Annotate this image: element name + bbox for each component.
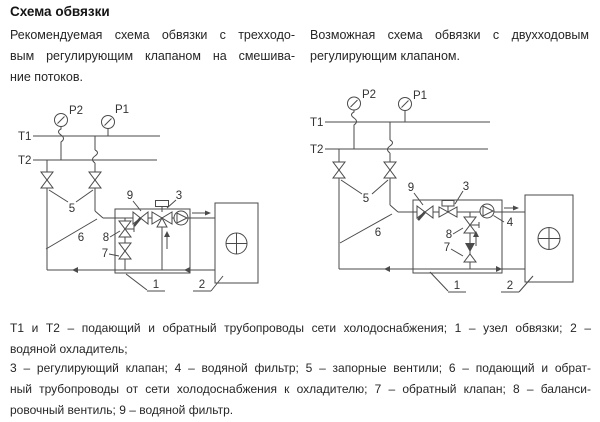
- leader-line: [455, 191, 463, 204]
- pipe-label-t1: Т1: [18, 131, 31, 143]
- callout-6: 6: [375, 227, 381, 239]
- filter-triangle: [141, 212, 149, 224]
- water-cooler: [215, 203, 258, 283]
- pipe-label-t2: Т2: [310, 144, 323, 156]
- pump-icon: [174, 211, 188, 225]
- arrow-head: [164, 231, 170, 237]
- document-page: Схема обвязки Рекомендуемая схема обвязк…: [0, 0, 600, 422]
- valve-triangle: [384, 162, 396, 170]
- pressure-gauge-p2: P2: [55, 105, 84, 160]
- valve-triangle: [89, 172, 101, 180]
- valve-triangle: [333, 162, 345, 170]
- callout-5: 5: [363, 193, 369, 205]
- callout-7: 7: [102, 248, 108, 260]
- balancing-valve-icon: [119, 221, 134, 237]
- flow-arrow-left-icon: [184, 267, 201, 273]
- pipe-bend: [390, 205, 398, 212]
- gauge-label-p1: P1: [413, 90, 427, 102]
- arrow-head: [184, 267, 190, 273]
- callout-3: 3: [176, 190, 182, 202]
- leader-line: [372, 180, 388, 194]
- callout-5: 5: [69, 203, 75, 215]
- valve-triangle: [464, 217, 476, 225]
- water-filter-icon: [133, 212, 148, 226]
- legend-paragraph-1: Т1 и Т2 – подающий и обратный трубопрово…: [10, 318, 591, 360]
- legend-line: 3 – регулирующий клапан; 4 – водяной фил…: [10, 358, 591, 379]
- valve-triangle: [384, 170, 396, 178]
- callout-9: 9: [408, 182, 414, 194]
- callout-3: 3: [463, 181, 469, 193]
- valve-triangle: [464, 254, 476, 262]
- flow-arrow-right-icon: [504, 206, 519, 211]
- leader-line: [453, 228, 463, 234]
- leader-line: [341, 180, 362, 194]
- leader-line: [430, 272, 448, 291]
- leader-line: [451, 249, 463, 256]
- shutoff-valve-icon: [333, 162, 345, 178]
- balancing-valve-icon: [464, 217, 479, 233]
- legend-paragraph-2: 3 – регулирующий клапан; 4 – водяной фил…: [10, 358, 591, 421]
- shutoff-valve-icon: [89, 172, 101, 188]
- gauge-stem: [352, 110, 357, 149]
- valve-triangle-filled: [465, 243, 475, 252]
- valve-triangle: [119, 243, 131, 251]
- callout-2: 2: [507, 280, 513, 292]
- flow-arrow-right-icon: [486, 266, 502, 272]
- arrow-head: [513, 206, 519, 211]
- arrow-head: [205, 211, 211, 216]
- leader-line: [519, 276, 533, 292]
- flow-arrow-up-icon: [164, 231, 170, 249]
- water-filter-icon: [417, 206, 433, 220]
- valve-triangle: [119, 221, 131, 229]
- callout-8: 8: [103, 232, 109, 244]
- valve-triangle: [464, 225, 476, 233]
- flow-arrow-right-icon: [192, 211, 211, 216]
- legend-line: Т1 и Т2 – подающий и обратный трубопрово…: [10, 318, 591, 339]
- valve-triangle: [41, 180, 53, 188]
- flow-arrow-left-icon: [384, 266, 403, 272]
- arrow-head: [384, 266, 390, 272]
- water-cooler: [525, 195, 573, 282]
- gauge-label-p2: P2: [69, 105, 83, 117]
- diagram-three-way-scheme: Т1 Т2 P2 P1: [18, 104, 258, 291]
- leader-line: [414, 193, 423, 205]
- pressure-gauge-p1: P1: [399, 90, 428, 122]
- callout-4: 4: [507, 217, 514, 229]
- leader-line: [340, 214, 392, 243]
- legend-line: водяной охладитель;: [10, 339, 591, 360]
- arrow-head: [496, 266, 502, 272]
- callout-2: 2: [199, 279, 205, 291]
- callout-1: 1: [454, 280, 460, 292]
- check-valve-icon: [119, 243, 131, 259]
- legend-line: ный трубопроводы от сети холодоснабжения…: [10, 379, 591, 400]
- two-way-valve-icon: [439, 201, 457, 218]
- pipe-bend: [95, 211, 103, 218]
- callout-1: 1: [153, 279, 159, 291]
- pipe-crossover-hop: [388, 140, 393, 153]
- leader-line: [76, 190, 93, 202]
- pipe-crossover-hop: [93, 150, 98, 163]
- gauge-label-p2: P2: [362, 89, 376, 101]
- pump-icon: [480, 204, 494, 218]
- valve-actuator: [156, 201, 169, 207]
- valve-triangle: [89, 180, 101, 188]
- pressure-gauge-p1: P1: [102, 104, 130, 136]
- filter-triangle: [425, 206, 433, 218]
- flow-arrow-left-icon: [72, 267, 91, 273]
- valve-triangle: [119, 229, 131, 237]
- arrow-head: [72, 267, 78, 273]
- leader-line: [126, 274, 147, 290]
- valve-triangle: [119, 251, 131, 259]
- three-way-valve-icon: [152, 201, 172, 228]
- callout-8: 8: [446, 229, 452, 241]
- valve-triangle: [439, 207, 448, 217]
- pressure-gauge-p2: P2: [348, 89, 377, 149]
- callout-6: 6: [78, 232, 84, 244]
- legend-line: ровочный вентиль; 9 – водяной фильтр.: [10, 400, 591, 421]
- shutoff-valve-icon: [41, 172, 53, 188]
- valve-triangle: [41, 172, 53, 180]
- pipe-label-t1: Т1: [310, 117, 323, 129]
- diagram-two-way-scheme: Т1 Т2 P2 P1: [310, 89, 573, 292]
- pipe-label-t2: Т2: [18, 155, 31, 167]
- gauge-stem: [59, 127, 64, 161]
- leader-line: [46, 219, 97, 249]
- valve-actuator: [442, 201, 454, 207]
- valve-triangle: [448, 207, 457, 217]
- shutoff-valve-icon: [384, 162, 396, 178]
- callout-9: 9: [127, 190, 133, 202]
- callout-7: 7: [444, 242, 450, 254]
- gauge-label-p1: P1: [115, 104, 129, 116]
- leader-line: [109, 254, 119, 256]
- leader-line: [49, 190, 68, 202]
- valve-triangle: [333, 170, 345, 178]
